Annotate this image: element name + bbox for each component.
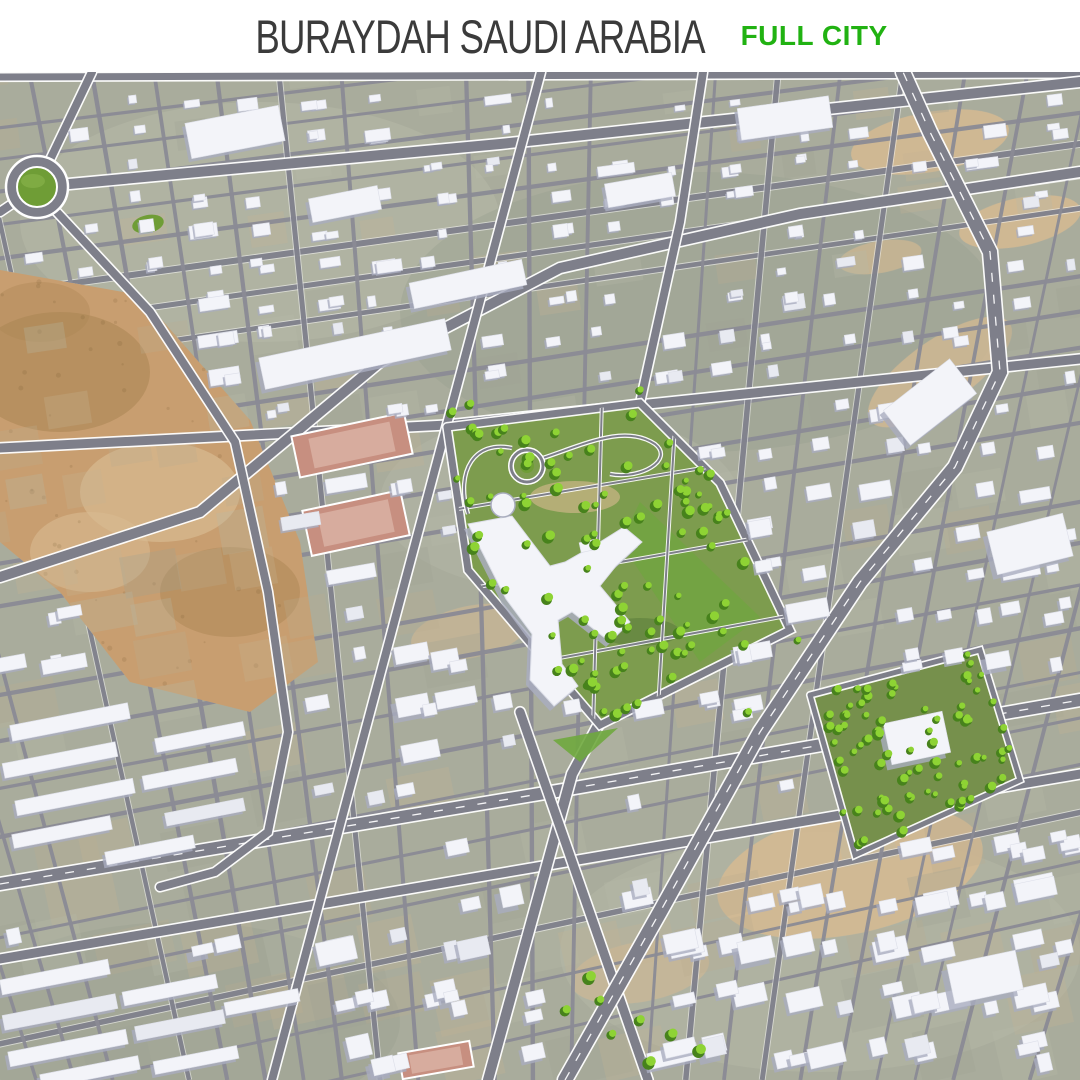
full-city-badge: FULL CITY: [741, 20, 888, 52]
product-image: BURAYDAH SAUDI ARABIA FULL CITY: [0, 0, 1080, 1080]
roundabout: [6, 156, 68, 218]
page-title: BURAYDAH SAUDI ARABIA: [256, 9, 705, 64]
header-bar: BURAYDAH SAUDI ARABIA FULL CITY: [0, 0, 1080, 72]
city-map-render: [0, 72, 1080, 1080]
